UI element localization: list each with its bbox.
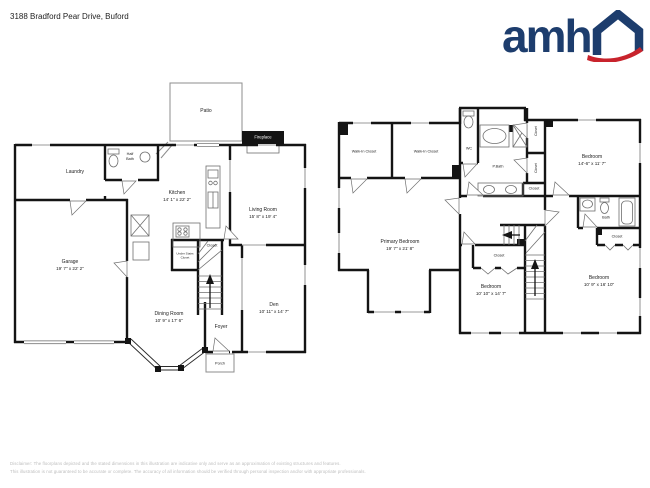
disclaimer-line-1: Disclaimer: The floorplans depicted and … xyxy=(10,461,341,466)
utility-closet-icon xyxy=(131,215,149,260)
first-floor-plan: Patio Fireplace Laundry Half Bath Garage… xyxy=(10,80,320,395)
room-label-half-bath: Half Bath xyxy=(123,152,138,162)
room-label-garage: Garage19' 7" x 22' 2" xyxy=(56,259,84,271)
floor2-walls xyxy=(338,108,641,334)
room-label-den: Den10' 11" x 14' 7" xyxy=(259,302,289,314)
room-label-pbath: P.Bath xyxy=(493,165,504,170)
second-floor-drawing xyxy=(333,98,647,370)
room-label-dining-room: Dining Room10' 9" x 17' 6" xyxy=(155,311,184,323)
closet-door-marks xyxy=(481,245,633,274)
bay-window-walls xyxy=(125,338,208,372)
amh-logo: amh xyxy=(502,10,648,62)
amh-logo-text: amh xyxy=(502,10,591,62)
staircase-icon xyxy=(502,225,545,299)
room-label-foyer: Foyer xyxy=(215,324,228,331)
room-label-closet-hall: Closet xyxy=(529,187,540,192)
room-label-porch: Porch xyxy=(215,362,225,367)
room-label-bedroom-top: Bedroom14'-6" x 11' 7" xyxy=(578,154,606,166)
kitchen-fixtures xyxy=(173,166,220,247)
property-address: 3188 Bradford Pear Drive, Buford xyxy=(10,12,129,21)
room-label-walk-in-closet-2: Walk-In Closet xyxy=(414,150,439,155)
room-label-closet: Closet xyxy=(207,244,218,249)
room-label-laundry: Laundry xyxy=(66,169,84,176)
house-icon xyxy=(597,14,639,55)
room-label-under-stairs-closet: Under Stairs Closet xyxy=(175,252,195,259)
room-label-closet-v2: Closet xyxy=(534,163,538,173)
room-label-living-room: Living Room15' 8" x 19' 4" xyxy=(249,207,277,219)
room-label-kitchen: Kitchen14' 1" x 22' 2" xyxy=(163,190,191,202)
staircase-icon xyxy=(198,241,222,309)
disclaimer-line-2: This illustration is not guaranteed to b… xyxy=(10,469,366,474)
room-label-bedroom-mid: Bedroom10' 10" x 14' 7" xyxy=(476,284,506,296)
room-label-bedroom-right: Bedroom10' 9" x 16' 10" xyxy=(584,275,614,287)
room-label-closet-bath: Closet xyxy=(612,235,623,240)
room-label-closet-v1: Closet xyxy=(534,126,538,136)
room-label-primary-bedroom: Primary Bedroom19' 7" x 21' 8" xyxy=(381,239,420,251)
second-floor-plan: Walk-In Closet Walk-In Closet WC P.Bath … xyxy=(333,98,647,370)
first-floor-drawing xyxy=(10,80,320,395)
wc-toilet-icon xyxy=(463,111,474,128)
room-label-bath: Bath xyxy=(602,216,610,221)
room-label-wc: WC xyxy=(466,147,472,152)
room-label-fireplace: Fireplace xyxy=(254,134,271,139)
wall-chunks xyxy=(339,120,602,245)
room-label-walk-in-closet-1: Walk-In Closet xyxy=(352,150,377,155)
floorplan-page: 3188 Bradford Pear Drive, Buford amh xyxy=(0,0,650,488)
door-swings xyxy=(351,123,597,244)
room-label-patio: Patio xyxy=(200,108,211,115)
room-label-closet-mid: Closet xyxy=(494,254,505,259)
